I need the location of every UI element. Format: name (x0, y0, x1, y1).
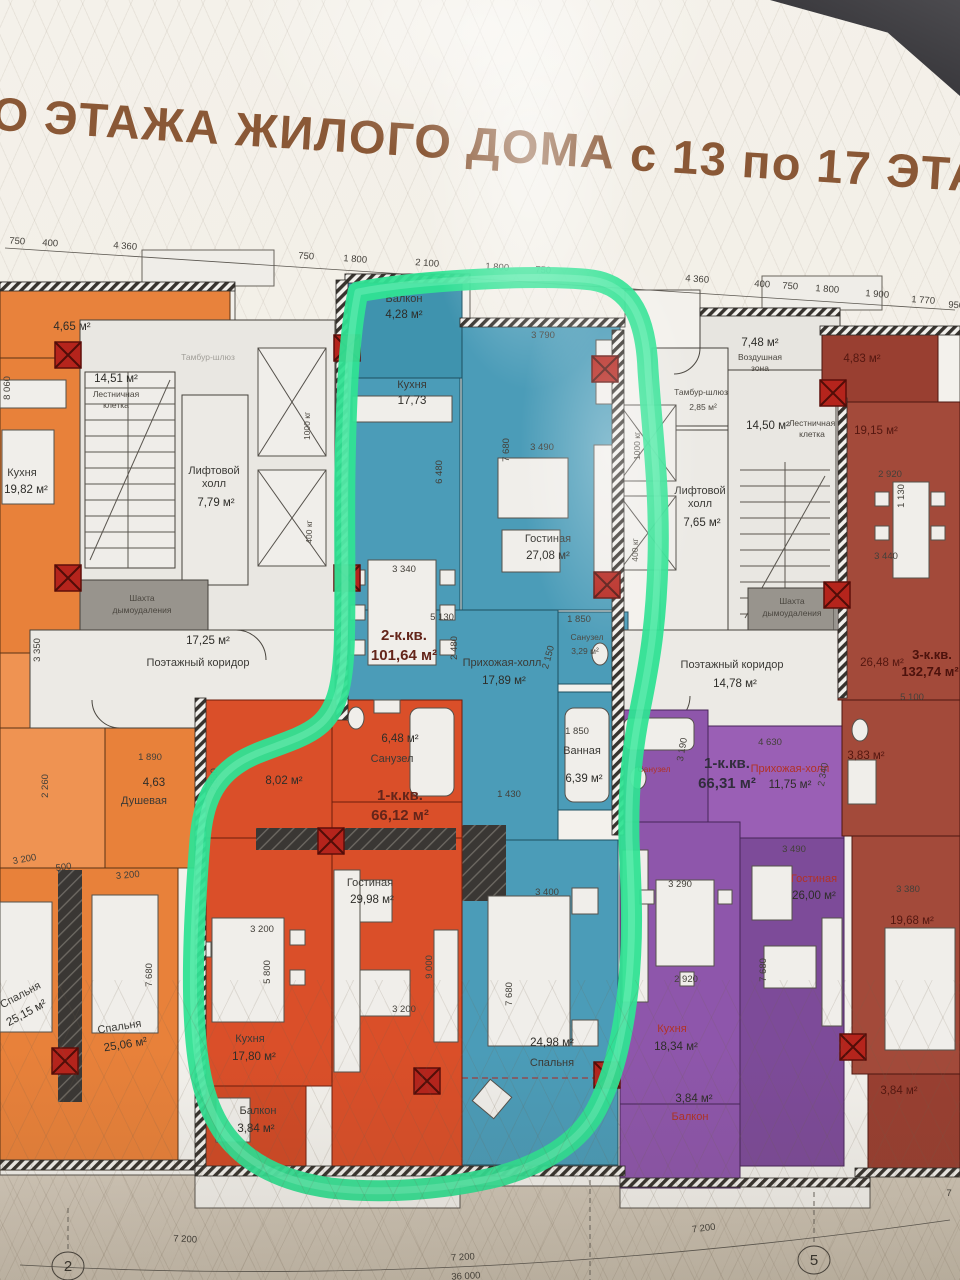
vent-block (256, 828, 456, 850)
svg-text:Гостиная: Гостиная (347, 877, 393, 889)
svg-text:18,34 м²: 18,34 м² (654, 1041, 698, 1053)
svg-text:2 480: 2 480 (449, 636, 460, 660)
toilet (348, 707, 364, 729)
svg-text:1000 кг: 1000 кг (632, 432, 642, 460)
svg-text:24,98 м²: 24,98 м² (530, 1037, 574, 1049)
svg-text:66,12 м²: 66,12 м² (371, 807, 429, 824)
svg-text:11,75 м²: 11,75 м² (769, 779, 812, 791)
svg-text:3 400: 3 400 (535, 887, 559, 898)
svg-text:7,79 м²: 7,79 м² (197, 497, 234, 509)
svg-text:3 200: 3 200 (115, 869, 140, 882)
svg-text:1 900: 1 900 (865, 288, 889, 301)
svg-text:17,80 м²: 17,80 м² (232, 1051, 276, 1063)
svg-text:Поэтажный коридор: Поэтажный коридор (147, 657, 250, 669)
svg-text:Кухня: Кухня (7, 467, 36, 479)
svg-text:2: 2 (64, 1258, 72, 1275)
upper-balcony-outline (142, 250, 274, 286)
svg-text:36 000: 36 000 (451, 1270, 481, 1280)
svg-text:750: 750 (782, 280, 799, 292)
svg-text:5 800: 5 800 (262, 960, 273, 984)
svg-text:Прихожая-холл: Прихожая-холл (463, 657, 542, 669)
svg-text:Тамбур-шлюз: Тамбур-шлюз (674, 387, 728, 397)
svg-text:Санузел: Санузел (570, 632, 603, 642)
svg-text:1 130: 1 130 (896, 484, 907, 508)
svg-text:5 100: 5 100 (900, 692, 924, 703)
floorplan-photo: { "title": "ГО ЭТАЖА ЖИЛОГО ДОМА с 13 по… (0, 0, 960, 1280)
svg-text:Санузел: Санузел (371, 753, 414, 765)
wall-corner-shadow (770, 0, 960, 96)
svg-text:2 260: 2 260 (40, 774, 51, 798)
bathtub (410, 708, 454, 796)
svg-text:4,83 м²: 4,83 м² (843, 353, 880, 365)
svg-text:клетка: клетка (103, 400, 129, 410)
svg-text:1 770: 1 770 (911, 294, 935, 307)
svg-text:8 060: 8 060 (2, 376, 13, 400)
svg-text:Спальня: Спальня (530, 1057, 574, 1069)
svg-text:3-к.кв.: 3-к.кв. (912, 647, 952, 662)
svg-text:1 800: 1 800 (815, 283, 839, 296)
svg-text:2 920: 2 920 (878, 469, 902, 480)
svg-text:132,74 м²: 132,74 м² (901, 664, 959, 679)
svg-text:Воздушная: Воздушная (738, 352, 782, 362)
svg-text:холл: холл (202, 478, 226, 490)
svg-text:Душевая: Душевая (121, 795, 167, 807)
svg-text:3 490: 3 490 (530, 442, 554, 453)
svg-text:Гостиная: Гостиная (791, 873, 837, 885)
svg-text:1000 кг: 1000 кг (302, 412, 312, 440)
svg-text:4 360: 4 360 (685, 273, 709, 286)
svg-text:Гостиная: Гостиная (525, 533, 571, 545)
svg-text:7 680: 7 680 (758, 958, 769, 982)
svg-text:14,78 м²: 14,78 м² (713, 678, 757, 690)
svg-text:Балкон: Балкон (240, 1105, 277, 1117)
svg-text:7,65 м²: 7,65 м² (683, 517, 720, 529)
svg-text:3 200: 3 200 (250, 924, 274, 935)
svg-text:750: 750 (9, 235, 26, 247)
svg-text:3,84 м²: 3,84 м² (237, 1123, 274, 1135)
svg-text:17,25 м²: 17,25 м² (186, 635, 230, 647)
svg-text:7 680: 7 680 (501, 438, 512, 462)
svg-text:7 200: 7 200 (173, 1233, 197, 1245)
svg-text:7,48 м²: 7,48 м² (741, 337, 778, 349)
svg-text:27,08 м²: 27,08 м² (526, 550, 570, 562)
svg-text:1-к.кв.: 1-к.кв. (377, 787, 423, 804)
svg-text:3 340: 3 340 (392, 564, 416, 575)
svg-text:19,15 м²: 19,15 м² (854, 425, 898, 437)
svg-text:3,84 м²: 3,84 м² (880, 1085, 917, 1097)
svg-text:Тамбур-шлюз: Тамбур-шлюз (181, 352, 235, 362)
svg-text:1 890: 1 890 (138, 752, 162, 763)
svg-text:500: 500 (55, 861, 72, 874)
svg-text:3 380: 3 380 (896, 884, 920, 895)
svg-text:зона: зона (751, 363, 769, 373)
svg-text:19,82 м²: 19,82 м² (4, 484, 48, 496)
svg-text:3,83 м²: 3,83 м² (847, 750, 884, 762)
svg-text:26,00 м²: 26,00 м² (792, 890, 836, 902)
svg-text:4,63: 4,63 (143, 777, 165, 789)
svg-text:3 290: 3 290 (668, 879, 692, 890)
svg-text:Лестничная: Лестничная (93, 389, 140, 399)
svg-text:17,89 м²: 17,89 м² (482, 675, 526, 687)
svg-text:7 680: 7 680 (144, 963, 155, 987)
svg-text:Шахта: Шахта (129, 593, 154, 603)
svg-text:9 000: 9 000 (424, 955, 435, 979)
svg-text:Кухня: Кухня (397, 379, 426, 391)
svg-text:17,73: 17,73 (398, 395, 427, 407)
svg-text:Ванная: Ванная (563, 745, 601, 757)
svg-text:26,48 м²: 26,48 м² (860, 657, 904, 669)
svg-text:Санузел: Санузел (637, 764, 670, 774)
svg-text:Кухня: Кухня (235, 1033, 264, 1045)
svg-text:Кухня: Кухня (657, 1023, 686, 1035)
svg-text:8,02 м²: 8,02 м² (265, 775, 302, 787)
svg-text:Поэтажный коридор: Поэтажный коридор (681, 659, 784, 671)
svg-text:3 790: 3 790 (531, 330, 555, 341)
poster-title: ГО ЭТАЖА ЖИЛОГО ДОМА с 13 по 17 ЭТАЖ (0, 84, 960, 206)
svg-text:5 130: 5 130 (430, 612, 454, 623)
svg-text:Шахта: Шахта (779, 596, 804, 606)
svg-text:66,31 м²: 66,31 м² (698, 775, 756, 792)
svg-text:29,98 м²: 29,98 м² (350, 894, 394, 906)
svg-text:4 630: 4 630 (758, 737, 782, 748)
svg-text:400: 400 (42, 237, 59, 249)
svg-text:дымоудаления: дымоудаления (763, 608, 822, 618)
svg-text:1-к.кв.: 1-к.кв. (704, 755, 750, 772)
svg-text:холл: холл (688, 498, 712, 510)
svg-text:7 680: 7 680 (504, 982, 515, 1006)
svg-text:2-к.кв.: 2-к.кв. (381, 627, 427, 644)
svg-text:1 850: 1 850 (567, 614, 591, 625)
svg-text:7: 7 (946, 1188, 951, 1199)
svg-text:1 850: 1 850 (565, 726, 589, 737)
svg-text:2 100: 2 100 (415, 257, 439, 270)
svg-text:3 350: 3 350 (32, 638, 43, 662)
svg-text:4,28 м²: 4,28 м² (385, 309, 422, 321)
svg-text:19,68 м²: 19,68 м² (890, 915, 934, 927)
svg-text:750: 750 (298, 250, 315, 262)
svg-text:3 490: 3 490 (782, 844, 806, 855)
svg-text:6 480: 6 480 (434, 460, 445, 484)
svg-text:клетка: клетка (799, 429, 825, 439)
svg-text:Лифтовой: Лифтовой (674, 485, 725, 497)
svg-text:101,64 м²: 101,64 м² (371, 647, 437, 664)
lift-hall (182, 395, 248, 585)
svg-text:Лестничная: Лестничная (789, 418, 836, 428)
svg-text:3 200: 3 200 (392, 1004, 416, 1015)
svg-text:950: 950 (948, 299, 960, 311)
svg-text:7 200: 7 200 (451, 1251, 475, 1263)
svg-text:1 800: 1 800 (343, 253, 367, 266)
svg-text:3,84 м²: 3,84 м² (675, 1093, 712, 1105)
svg-text:400 кг: 400 кг (304, 520, 314, 543)
svg-text:3 440: 3 440 (874, 551, 898, 562)
svg-text:400 кг: 400 кг (630, 538, 640, 561)
svg-text:Лифтовой: Лифтовой (188, 465, 239, 477)
svg-text:3,29 м²: 3,29 м² (571, 646, 599, 656)
svg-text:6,48 м²: 6,48 м² (381, 733, 418, 745)
svg-text:4,65 м²: 4,65 м² (53, 321, 90, 333)
svg-text:7 200: 7 200 (691, 1222, 716, 1236)
floor-plan: 750 400 4 360 750 1 800 2 100 1 800 750 … (0, 230, 960, 1280)
svg-text:4 360: 4 360 (113, 240, 137, 253)
svg-text:1 430: 1 430 (497, 789, 521, 800)
svg-text:2 920: 2 920 (674, 974, 698, 985)
svg-text:дымоудаления: дымоудаления (113, 605, 172, 615)
svg-text:2,85 м²: 2,85 м² (689, 402, 717, 412)
svg-text:5: 5 (810, 1252, 818, 1269)
svg-text:400: 400 (754, 278, 771, 290)
svg-text:Балкон: Балкон (672, 1111, 709, 1123)
svg-text:6,39 м²: 6,39 м² (565, 773, 602, 785)
svg-text:14,51 м²: 14,51 м² (94, 373, 138, 385)
toilet (852, 719, 868, 741)
svg-text:14,50 м²: 14,50 м² (746, 420, 790, 432)
